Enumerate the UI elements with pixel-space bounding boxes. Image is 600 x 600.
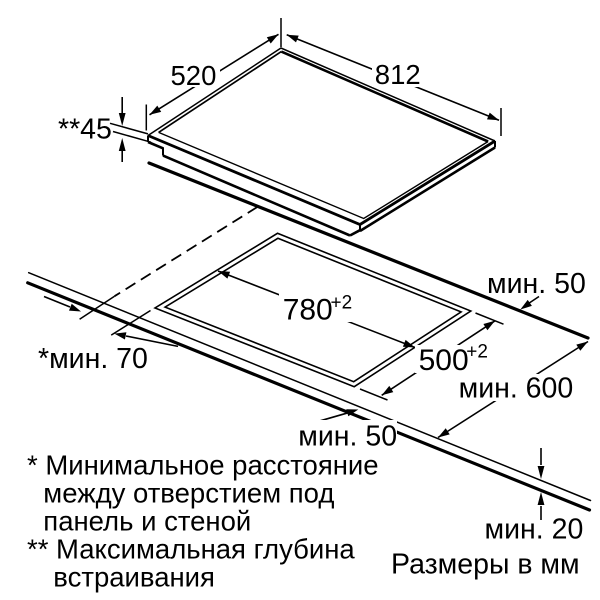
svg-text:* Минимальное расстояние: * Минимальное расстояние — [27, 450, 379, 481]
svg-text:**45: **45 — [58, 114, 112, 146]
svg-text:панель и стеной: панель и стеной — [43, 506, 251, 537]
svg-text:520: 520 — [171, 60, 217, 91]
svg-text:+2: +2 — [466, 342, 488, 363]
svg-text:+2: +2 — [331, 293, 353, 314]
svg-text:Размеры в мм: Размеры в мм — [391, 549, 580, 581]
svg-text:мин. 50: мин. 50 — [298, 421, 397, 453]
svg-text:встраивания: встраивания — [53, 562, 215, 593]
svg-text:между отверстием под: между отверстием под — [43, 478, 334, 509]
svg-text:780: 780 — [283, 294, 333, 327]
svg-text:812: 812 — [375, 59, 421, 90]
svg-text:*мин. 70: *мин. 70 — [38, 343, 148, 375]
svg-text:** Максимальная глубина: ** Максимальная глубина — [27, 534, 355, 565]
svg-text:мин. 50: мин. 50 — [487, 268, 586, 300]
svg-text:мин. 600: мин. 600 — [459, 373, 574, 405]
svg-text:мин. 20: мин. 20 — [485, 514, 584, 546]
